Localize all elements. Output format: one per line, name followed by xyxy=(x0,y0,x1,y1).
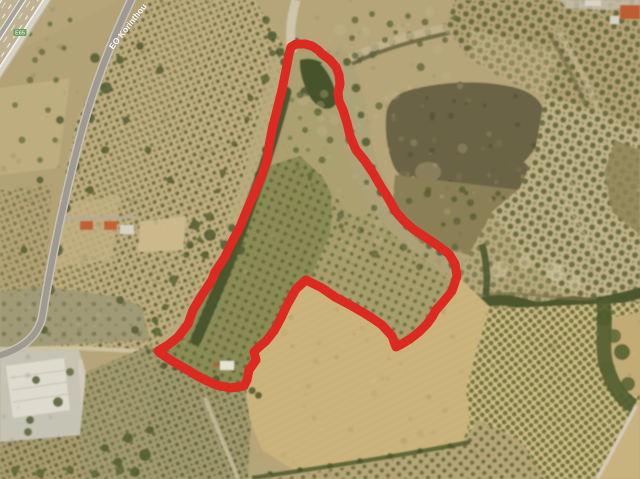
svg-text:E65: E65 xyxy=(15,31,25,37)
